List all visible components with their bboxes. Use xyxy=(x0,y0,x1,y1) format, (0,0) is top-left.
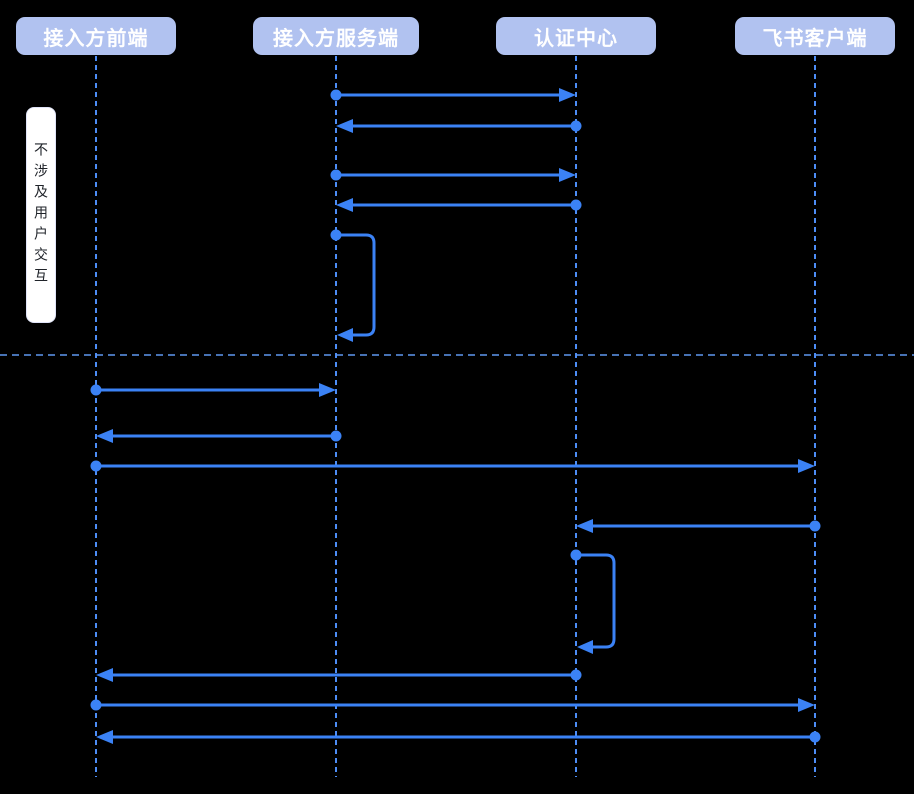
self-message-origin-dot-4 xyxy=(331,230,342,241)
message-origin-dot-5 xyxy=(91,385,102,396)
message-origin-dot-10 xyxy=(571,670,582,681)
sequence-diagram-canvas xyxy=(0,0,914,794)
self-message-arrowhead-4 xyxy=(337,328,353,342)
message-origin-dot-0 xyxy=(331,90,342,101)
message-arrowhead-6 xyxy=(96,429,113,443)
message-arrowhead-10 xyxy=(96,668,113,682)
self-message-origin-dot-9 xyxy=(571,550,582,561)
message-arrowhead-8 xyxy=(576,519,593,533)
message-arrowhead-7 xyxy=(798,459,815,473)
message-origin-dot-7 xyxy=(91,461,102,472)
message-arrowhead-2 xyxy=(559,168,576,182)
message-arrowhead-12 xyxy=(96,730,113,744)
actor-box-auth: 认证中心 xyxy=(496,17,656,55)
message-origin-dot-11 xyxy=(91,700,102,711)
self-message-line-4 xyxy=(336,235,374,335)
message-origin-dot-2 xyxy=(331,170,342,181)
message-arrowhead-0 xyxy=(559,88,576,102)
message-arrowhead-5 xyxy=(319,383,336,397)
self-message-arrowhead-9 xyxy=(577,640,593,654)
note-no-user-interaction: 不涉及用户交互 xyxy=(26,107,56,323)
actor-box-server: 接入方服务端 xyxy=(253,17,419,55)
message-origin-dot-6 xyxy=(331,431,342,442)
message-origin-dot-3 xyxy=(571,200,582,211)
message-arrowhead-11 xyxy=(798,698,815,712)
actor-box-frontend: 接入方前端 xyxy=(16,17,176,55)
message-arrowhead-3 xyxy=(336,198,353,212)
message-origin-dot-12 xyxy=(810,732,821,743)
sequence-diagram: 接入方前端 接入方服务端 认证中心 飞书客户端 不涉及用户交互 xyxy=(0,0,914,794)
message-origin-dot-1 xyxy=(571,121,582,132)
self-message-line-9 xyxy=(576,555,614,647)
actor-box-feishu: 飞书客户端 xyxy=(735,17,895,55)
message-arrowhead-1 xyxy=(336,119,353,133)
message-origin-dot-8 xyxy=(810,521,821,532)
